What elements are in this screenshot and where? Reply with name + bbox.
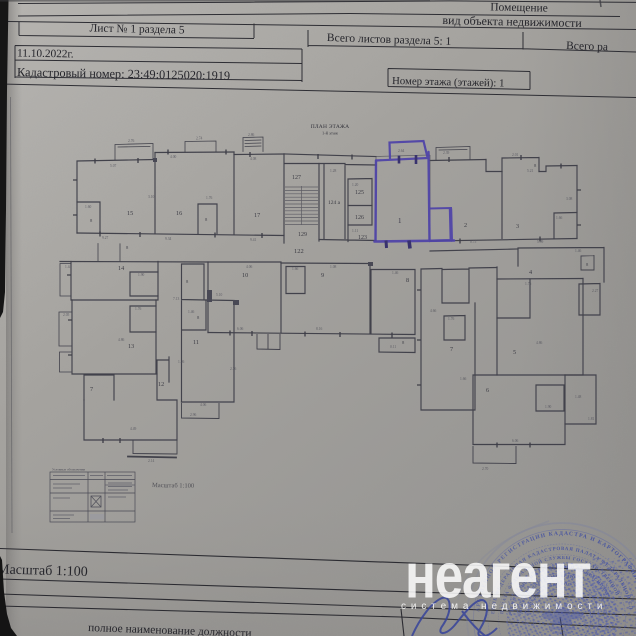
svg-text:2.05: 2.05 <box>63 313 69 317</box>
svg-text:2.36: 2.36 <box>230 367 236 371</box>
svg-text:5.99: 5.99 <box>537 240 543 244</box>
svg-text:Масштаб 1:100: Масштаб 1:100 <box>152 482 194 490</box>
svg-text:4: 4 <box>529 269 532 276</box>
svg-text:126: 126 <box>355 215 364 221</box>
svg-text:5.07: 5.07 <box>110 164 116 168</box>
svg-text:1.28: 1.28 <box>330 169 336 173</box>
svg-text:2.86: 2.86 <box>248 133 254 137</box>
svg-text:4.08: 4.08 <box>250 157 256 161</box>
svg-text:4.86: 4.86 <box>536 341 542 345</box>
svg-text:2.70: 2.70 <box>482 467 488 471</box>
svg-text:0.75: 0.75 <box>470 240 476 244</box>
svg-text:Помещение: Помещение <box>490 1 548 14</box>
svg-text:1.26: 1.26 <box>178 360 184 364</box>
svg-text:Лист № 1 раздела 5: Лист № 1 раздела 5 <box>89 23 185 37</box>
svg-text:1.76: 1.76 <box>206 196 212 200</box>
svg-text:5.10: 5.10 <box>216 293 222 297</box>
svg-text:2.14: 2.14 <box>148 459 154 463</box>
svg-text:1.46: 1.46 <box>575 249 581 253</box>
svg-text:127: 127 <box>292 175 301 181</box>
svg-text:13: 13 <box>128 343 134 350</box>
svg-text:123: 123 <box>358 235 367 241</box>
svg-text:2.27: 2.27 <box>592 289 598 293</box>
svg-text:4.66: 4.66 <box>430 309 436 313</box>
svg-text:122: 122 <box>294 248 304 255</box>
svg-text:Всего ра: Всего ра <box>566 40 608 53</box>
svg-text:0.11: 0.11 <box>390 345 396 349</box>
svg-text:2.64: 2.64 <box>398 149 404 153</box>
svg-text:7.13: 7.13 <box>173 297 179 301</box>
svg-text:1.11: 1.11 <box>352 229 358 233</box>
svg-text:6.06: 6.06 <box>237 327 243 331</box>
svg-text:9.41: 9.41 <box>250 238 256 242</box>
svg-text:1.66: 1.66 <box>556 216 562 220</box>
svg-text:Номер этажа (этажей): 1: Номер этажа (этажей): 1 <box>392 75 505 90</box>
svg-text:124 а: 124 а <box>328 200 341 206</box>
svg-text:3.10: 3.10 <box>148 195 154 199</box>
svg-text:4.06: 4.06 <box>246 265 252 269</box>
svg-text:4.00: 4.00 <box>170 155 176 159</box>
svg-text:4.06: 4.06 <box>200 403 206 407</box>
svg-text:2.74: 2.74 <box>196 137 202 141</box>
svg-text:2.39: 2.39 <box>443 151 449 155</box>
svg-text:2.01: 2.01 <box>512 153 518 157</box>
svg-text:10: 10 <box>242 272 248 279</box>
svg-text:11: 11 <box>193 339 199 346</box>
svg-text:1.66: 1.66 <box>292 267 298 271</box>
svg-text:6.06: 6.06 <box>512 439 518 443</box>
svg-text:8.16: 8.16 <box>316 327 322 331</box>
svg-text:1.46: 1.46 <box>188 310 194 314</box>
svg-text:2: 2 <box>464 222 467 229</box>
svg-text:15: 15 <box>127 210 133 217</box>
svg-text:ПЛАН ЭТАЖА: ПЛАН ЭТАЖА <box>311 124 350 130</box>
svg-text:1.46: 1.46 <box>392 271 398 275</box>
svg-text:11.10.2022г.: 11.10.2022г. <box>17 48 74 61</box>
svg-text:7: 7 <box>90 386 93 393</box>
svg-text:1.76: 1.76 <box>135 307 141 311</box>
svg-text:9.34: 9.34 <box>165 237 171 241</box>
svg-text:125: 125 <box>355 190 364 196</box>
svg-text:1.81: 1.81 <box>588 417 594 421</box>
svg-text:1.20: 1.20 <box>352 183 358 187</box>
svg-text:4.49: 4.49 <box>130 427 136 431</box>
svg-text:1-й этаж: 1-й этаж <box>322 131 339 136</box>
svg-text:1.76: 1.76 <box>448 317 454 321</box>
svg-text:4.86: 4.86 <box>118 338 124 342</box>
svg-text:129: 129 <box>298 232 307 238</box>
svg-text:14: 14 <box>118 265 124 272</box>
svg-text:Условные обозначения: Условные обозначения <box>52 468 85 472</box>
svg-text:вид объекта недвижимости: вид объекта недвижимости <box>442 13 582 30</box>
svg-text:1.48: 1.48 <box>575 395 581 399</box>
svg-text:2.96: 2.96 <box>190 413 196 417</box>
svg-text:5.21: 5.21 <box>527 169 533 173</box>
svg-text:7: 7 <box>450 346 453 353</box>
svg-text:система недвижимости: система недвижимости <box>401 601 607 612</box>
svg-text:1.90: 1.90 <box>138 273 144 277</box>
svg-text:17: 17 <box>254 212 260 219</box>
svg-text:1: 1 <box>398 217 402 225</box>
svg-text:1.66: 1.66 <box>460 377 466 381</box>
svg-text:9.27: 9.27 <box>102 236 108 240</box>
svg-text:3: 3 <box>516 223 519 230</box>
svg-text:2.76: 2.76 <box>128 139 134 143</box>
svg-text:3.08: 3.08 <box>566 197 572 201</box>
svg-text:5: 5 <box>513 349 516 356</box>
svg-text:12: 12 <box>158 381 164 388</box>
svg-text:1.90: 1.90 <box>545 405 551 409</box>
svg-text:16: 16 <box>176 210 182 217</box>
svg-text:9: 9 <box>321 272 324 279</box>
svg-text:8: 8 <box>406 277 409 284</box>
svg-text:1.76: 1.76 <box>525 282 531 286</box>
svg-text:6: 6 <box>486 387 489 394</box>
svg-text:Масштаб 1:100: Масштаб 1:100 <box>0 562 88 580</box>
svg-text:1.08: 1.08 <box>330 265 336 269</box>
svg-text:1.60: 1.60 <box>85 205 91 209</box>
svg-text:1.44: 1.44 <box>65 265 71 269</box>
